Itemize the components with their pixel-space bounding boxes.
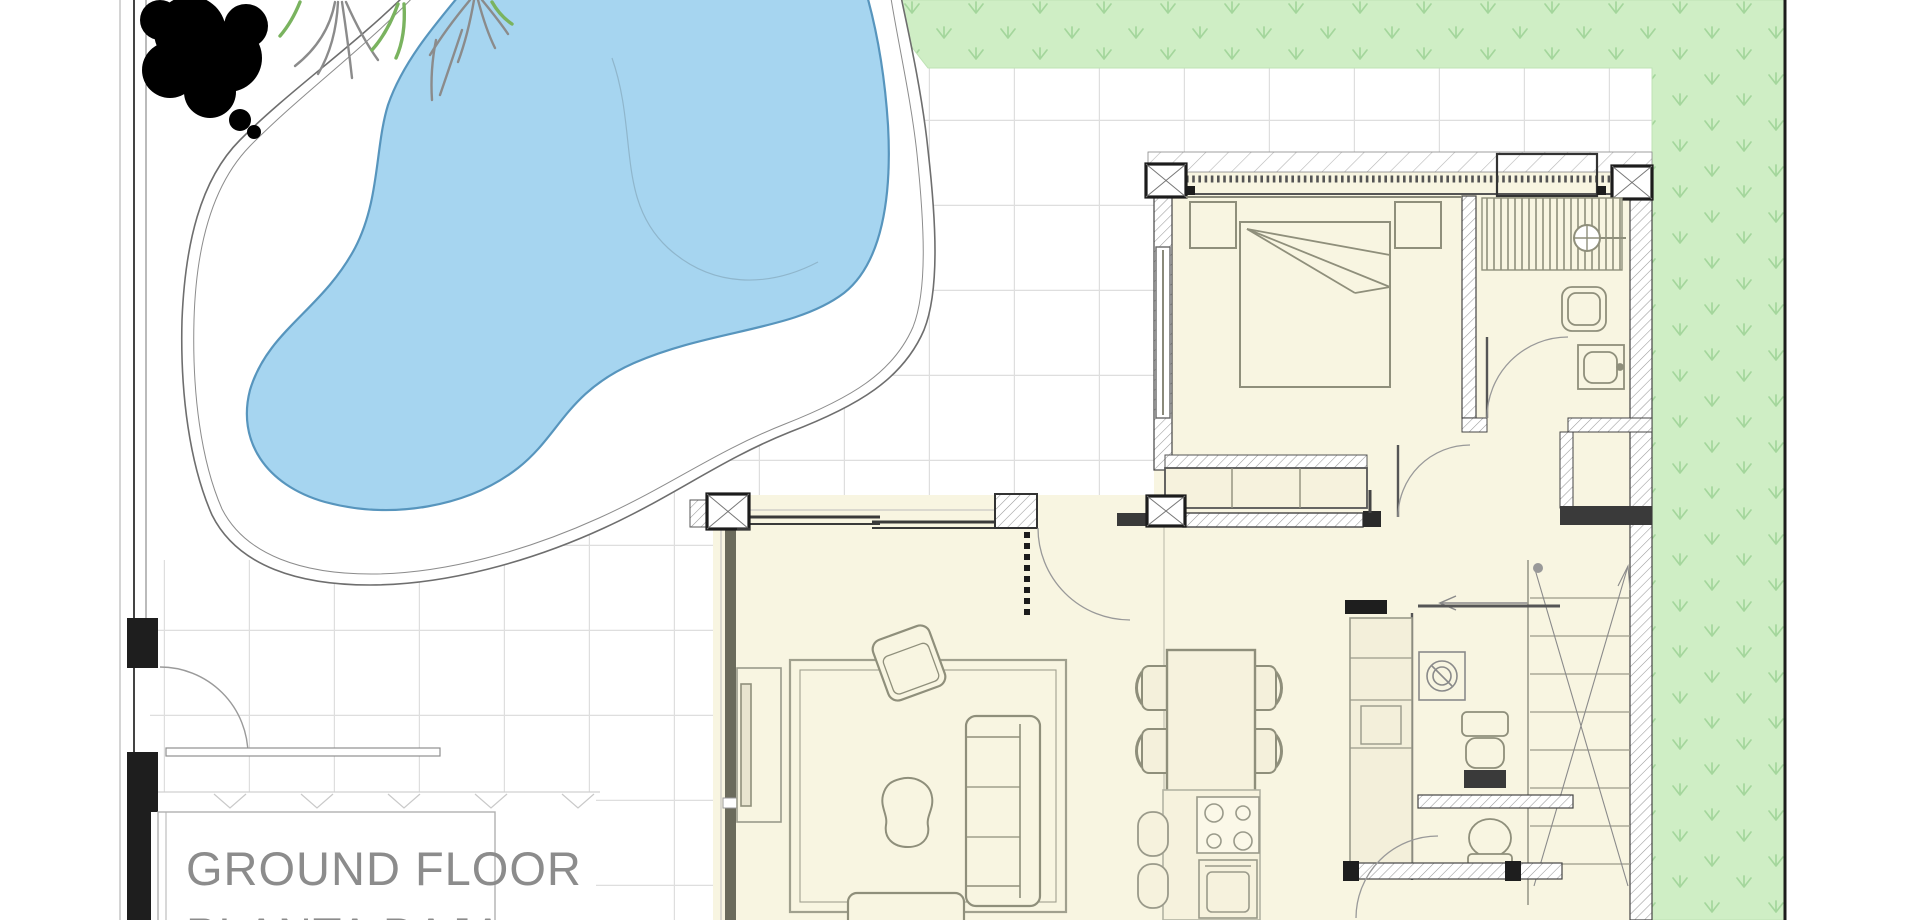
toilet-icon bbox=[1468, 819, 1512, 866]
column-icon bbox=[1147, 496, 1185, 526]
double-bed bbox=[1240, 222, 1390, 387]
toilet-icon bbox=[1462, 712, 1508, 788]
washbasin-icon bbox=[1578, 345, 1624, 389]
washing-machine-icon bbox=[1419, 652, 1465, 700]
dining-table bbox=[1167, 650, 1255, 793]
title-block: GROUND FLOOR PLANTA BAJA bbox=[158, 812, 582, 920]
tv-unit bbox=[737, 668, 781, 822]
floor-title-es: PLANTA BAJA bbox=[186, 908, 504, 920]
floor-plan-page: GROUND FLOOR PLANTA BAJA bbox=[0, 0, 1920, 920]
bedroom-window-west bbox=[1154, 196, 1172, 470]
nightstand-right bbox=[1395, 202, 1441, 248]
column-icon bbox=[1612, 166, 1652, 199]
nightstand-left bbox=[1190, 202, 1236, 248]
column-icon bbox=[1146, 164, 1186, 197]
kitchen-tall-units bbox=[1345, 600, 1412, 880]
wall-east bbox=[1630, 196, 1652, 920]
shower-area bbox=[1482, 198, 1622, 270]
toilet-icon bbox=[1562, 287, 1606, 331]
door-pocket bbox=[995, 494, 1037, 528]
terrace-edge-ticks bbox=[214, 794, 594, 808]
oven-icon bbox=[1199, 860, 1257, 918]
sofa bbox=[966, 716, 1040, 906]
floor-title-en: GROUND FLOOR bbox=[186, 842, 582, 895]
floor-plan-canvas: GROUND FLOOR PLANTA BAJA bbox=[0, 0, 1920, 920]
wall-bedroom-bathroom bbox=[1462, 196, 1476, 418]
ottoman bbox=[848, 893, 964, 920]
built-in-wardrobe bbox=[1165, 455, 1367, 508]
handrail-post bbox=[1533, 563, 1543, 573]
stool bbox=[1138, 812, 1168, 856]
column-icon bbox=[707, 494, 749, 529]
stool bbox=[1138, 864, 1168, 908]
wall-hall-south bbox=[1183, 513, 1363, 527]
coffee-table bbox=[882, 778, 932, 847]
cooktop-icon bbox=[1197, 797, 1259, 853]
